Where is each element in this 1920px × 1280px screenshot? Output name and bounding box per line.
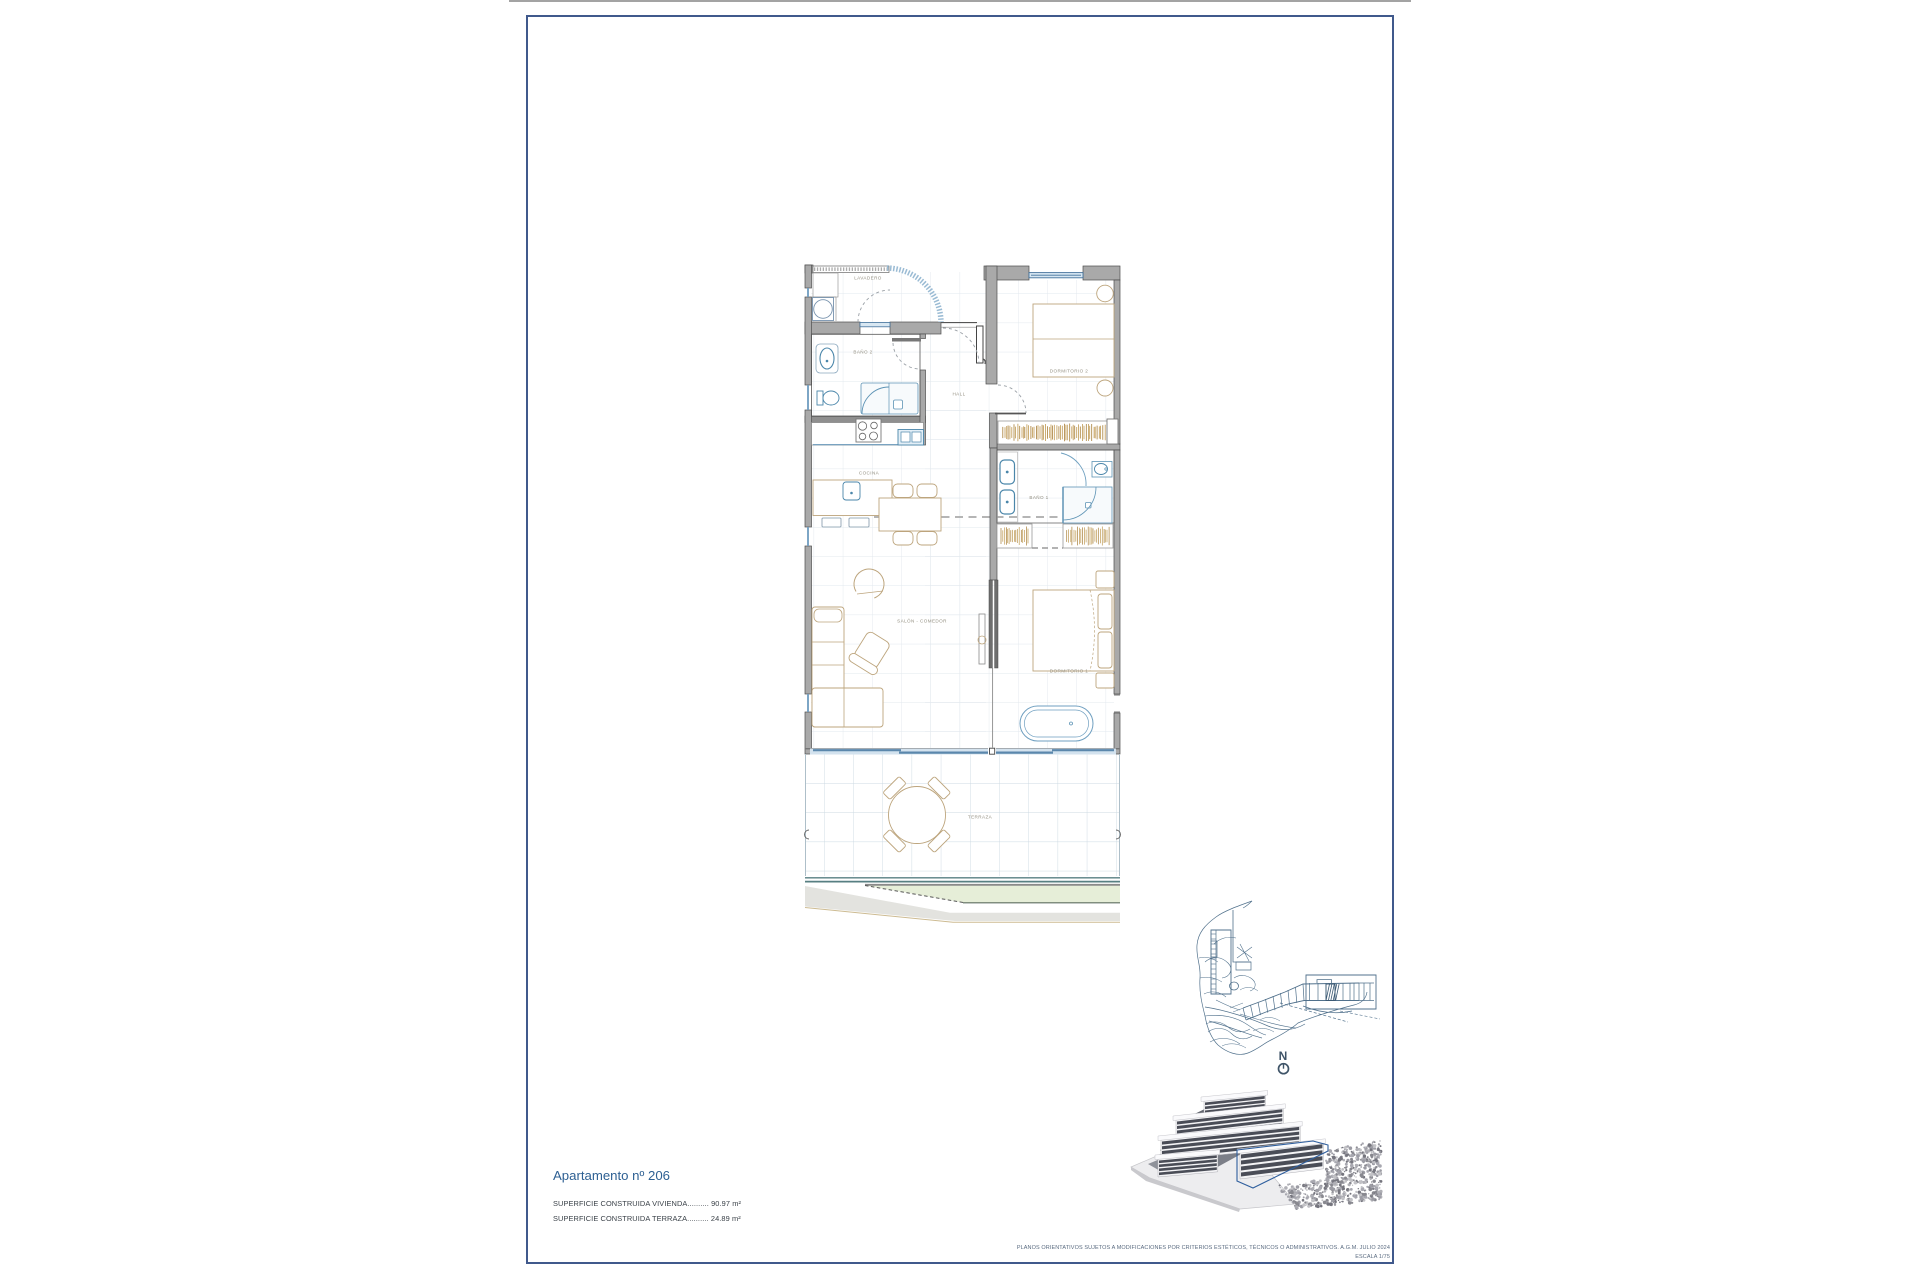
svg-text:BAÑO 1: BAÑO 1: [1029, 494, 1048, 500]
svg-text:TERRAZA: TERRAZA: [968, 815, 993, 820]
svg-text:DORMITORIO 1: DORMITORIO 1: [1050, 669, 1088, 674]
svg-text:N: N: [1279, 1049, 1288, 1063]
svg-text:BAÑO 2: BAÑO 2: [853, 349, 872, 355]
svg-text:SALÓN - COMEDOR: SALÓN - COMEDOR: [897, 618, 947, 624]
svg-text:HALL: HALL: [952, 392, 965, 397]
svg-text:COCINA: COCINA: [859, 471, 880, 476]
svg-text:LAVADERO: LAVADERO: [854, 276, 882, 281]
svg-text:DORMITORIO 2: DORMITORIO 2: [1050, 369, 1088, 374]
